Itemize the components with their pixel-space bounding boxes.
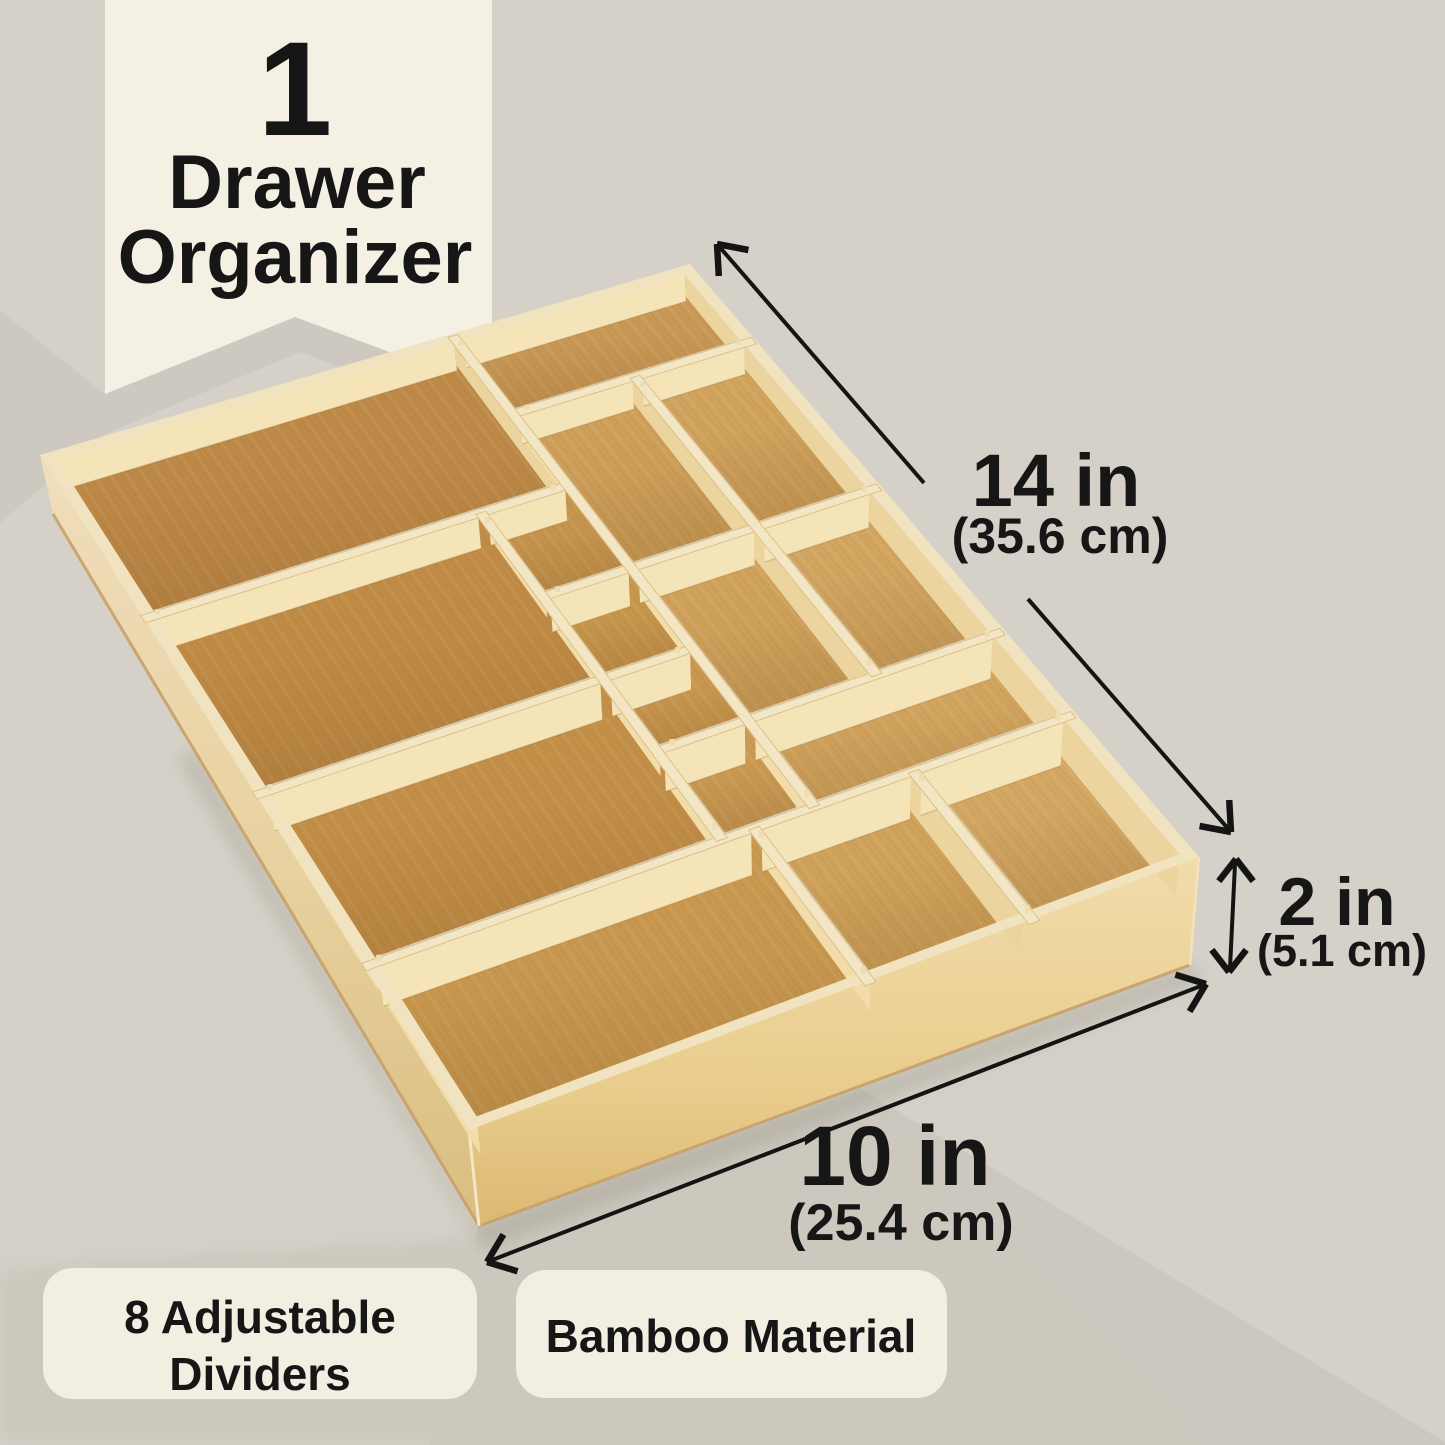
svg-text:10 in: 10 in — [799, 1109, 990, 1203]
svg-text:Drawer: Drawer — [168, 140, 426, 225]
svg-text:(25.4 cm): (25.4 cm) — [788, 1194, 1013, 1252]
svg-text:Bamboo Material: Bamboo Material — [546, 1310, 917, 1362]
svg-text:(5.1 cm): (5.1 cm) — [1257, 925, 1427, 976]
svg-text:Organizer: Organizer — [118, 215, 473, 300]
svg-text:Dividers: Dividers — [169, 1348, 351, 1400]
svg-text:8 Adjustable: 8 Adjustable — [124, 1291, 396, 1343]
svg-text:(35.6 cm): (35.6 cm) — [952, 508, 1169, 564]
